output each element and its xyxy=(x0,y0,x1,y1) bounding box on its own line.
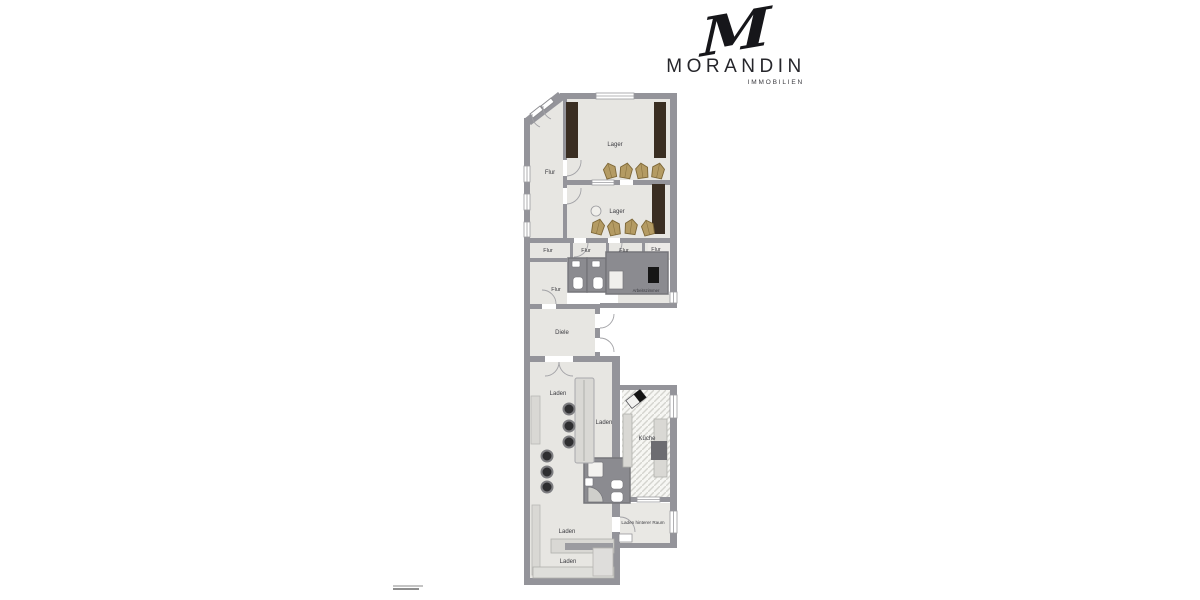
window-kueche-right xyxy=(670,395,677,418)
shelf-rack xyxy=(654,102,666,158)
shower-icon xyxy=(588,462,603,477)
shelf-rack xyxy=(566,102,578,158)
radiator-icon xyxy=(619,534,632,542)
window-left-3 xyxy=(524,222,530,237)
label-diele: Diele xyxy=(555,330,569,336)
sink-icon xyxy=(585,478,593,486)
door-arc-diele-2 xyxy=(600,338,614,352)
wall-left xyxy=(524,118,530,585)
wall-arbeitszimmer-bottom xyxy=(600,303,677,308)
label-kueche: Küche xyxy=(638,436,656,442)
kitchen-counter-left xyxy=(623,414,632,467)
door-gap-flur-lower xyxy=(542,304,556,309)
label-flur-c: Flur xyxy=(619,248,629,254)
kitchen-stove xyxy=(651,441,667,460)
door-gap-diele-1 xyxy=(595,314,600,328)
toilet-icon xyxy=(611,492,623,502)
window-right-arbeitszimmer xyxy=(670,292,677,303)
label-flur-b: Flur xyxy=(581,248,591,254)
wall-shelf xyxy=(532,505,540,575)
floor-plan: Flur Lager Lager Flur Flur Flur Flur Flu… xyxy=(0,0,1200,600)
window-left-2 xyxy=(524,194,530,210)
side-counter xyxy=(593,548,613,576)
stool-icon xyxy=(542,451,553,462)
wall-right-upper xyxy=(670,93,677,308)
stool-icon xyxy=(564,404,575,415)
window-left-1 xyxy=(524,166,530,182)
stool-icon xyxy=(564,437,575,448)
label-flur-d: Flur xyxy=(651,247,661,253)
label-laden-4: Laden xyxy=(560,559,577,565)
door-gap-hinterer xyxy=(612,517,620,532)
label-arbeitszimmer: Arbeitszimmer xyxy=(633,288,660,293)
door-gap-laden xyxy=(545,356,573,362)
wall-kueche-top xyxy=(614,385,676,390)
wall-shelf xyxy=(531,396,540,444)
door-gap-corridor-2 xyxy=(608,238,620,243)
stool-icon xyxy=(564,421,575,432)
wall-hinterer-bottom xyxy=(612,543,676,548)
label-laden-2: Laden xyxy=(596,420,613,426)
round-table-icon xyxy=(591,206,601,216)
sink-icon xyxy=(572,261,580,267)
label-lager-1: Lager xyxy=(607,142,622,148)
fineprint-line xyxy=(393,585,423,587)
plan-fineprint xyxy=(393,585,425,590)
appliance-black-icon xyxy=(648,267,659,283)
door-gap-lager2 xyxy=(563,188,567,204)
label-lager-2: Lager xyxy=(609,209,624,215)
door-gap-corridor-1 xyxy=(574,238,586,243)
window-kueche-bottom xyxy=(637,497,660,502)
page: M MORANDIN IMMOBILIEN xyxy=(0,0,1200,600)
wall-bottom xyxy=(524,578,620,585)
toilet-icon xyxy=(593,277,603,289)
appliance-white-icon xyxy=(609,271,623,289)
door-gap-diele-2 xyxy=(595,338,600,352)
window-hinterer-right xyxy=(670,511,677,533)
stool-icon xyxy=(542,467,553,478)
toilet-icon xyxy=(611,480,623,489)
window-lager-divider xyxy=(592,180,614,185)
wall-below-lager2 xyxy=(527,238,677,243)
sink-icon xyxy=(592,261,600,267)
label-flur-lower: Flur xyxy=(551,287,561,293)
label-flur-a: Flur xyxy=(543,248,553,254)
wall-flur-split xyxy=(530,258,567,262)
label-flur-upper: Flur xyxy=(545,170,555,176)
label-laden-3: Laden xyxy=(559,529,576,535)
door-gap-lager1 xyxy=(563,160,567,176)
toilet-icon xyxy=(573,277,583,289)
label-laden-hinterer-raum: Laden hinterer Raum xyxy=(621,520,664,525)
label-laden-1: Laden xyxy=(550,391,567,397)
wall-diele-top xyxy=(527,304,600,309)
fineprint-line xyxy=(393,588,419,590)
stool-icon xyxy=(542,482,553,493)
door-arc-diele-1 xyxy=(600,314,614,328)
window-top xyxy=(596,93,634,99)
door-gap-divider xyxy=(620,180,633,185)
